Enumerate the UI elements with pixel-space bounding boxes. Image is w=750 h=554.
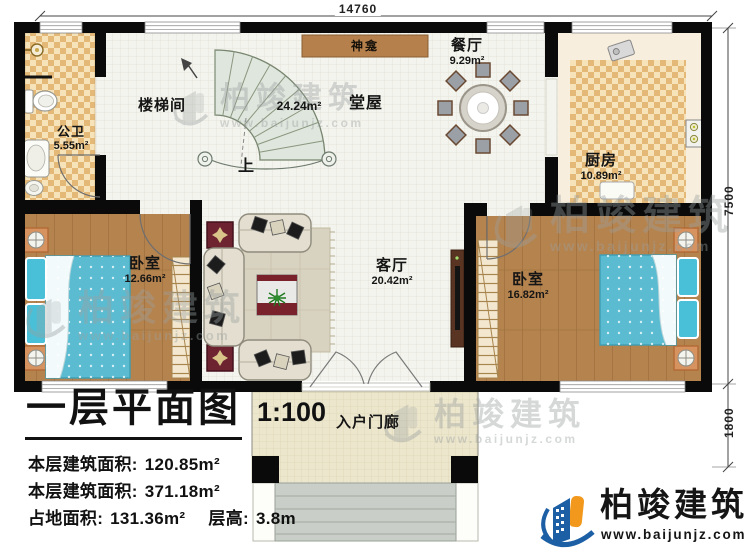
room-label-bathroom: 公卫 5.55m²	[54, 125, 89, 152]
room-area: 16.82m²	[508, 289, 549, 301]
stat-label: 本层建筑面积:	[28, 455, 138, 474]
room-label-dining: 餐厅 9.29m²	[450, 38, 485, 67]
room-label-hall: 堂屋	[349, 95, 383, 113]
tv-cabinet-icon	[451, 250, 464, 347]
title-block: 一层平面图 1:100	[26, 388, 326, 428]
floor-plan-page: 柏竣建筑 www.baijunjz.com 柏竣建筑 www.baijunjz.…	[0, 0, 750, 554]
room-name: 卧室	[125, 256, 166, 273]
room-name: 公卫	[54, 125, 89, 140]
room-name: 卧室	[508, 272, 549, 289]
room-area: 9.29m²	[450, 55, 485, 67]
stat-row-3: 占地面积:131.36m² 层高:3.8m	[28, 504, 296, 529]
dimension-right-upper: 7500	[722, 185, 736, 216]
stat-label: 占地面积:	[28, 509, 103, 528]
room-label-stairwell: 楼梯间	[138, 98, 186, 115]
room-name: 客厅	[372, 258, 413, 275]
brand-logo-icon	[534, 489, 598, 549]
room-label-bedroom-right: 卧室 16.82m²	[508, 272, 549, 301]
room-area: 10.89m²	[581, 170, 622, 182]
room-area: 12.66m²	[125, 273, 166, 285]
room-label-shrine: 神龛	[351, 40, 379, 53]
room-label-kitchen: 厨房 10.89m²	[581, 153, 622, 182]
room-area: 24.24m²	[277, 100, 322, 113]
room-name: 厨房	[581, 153, 622, 170]
brand-website: www.baijunjz.com	[601, 527, 746, 542]
room-name: 神龛	[351, 40, 379, 53]
dining-table-icon	[438, 63, 528, 153]
dimension-right-lower: 1800	[722, 407, 736, 438]
room-area: 5.55m²	[54, 140, 89, 152]
room-area: 20.42m²	[372, 275, 413, 287]
hall-area-label: 24.24m²	[277, 100, 322, 113]
dimension-top: 14760	[335, 2, 381, 16]
room-label-porch: 入户门廊	[336, 415, 400, 432]
room-name: 入户门廊	[336, 415, 400, 432]
stat-label: 层高:	[208, 509, 249, 528]
stat-row-1: 本层建筑面积:120.85m²	[28, 450, 220, 475]
room-name: 餐厅	[450, 38, 485, 55]
title-underline	[25, 437, 242, 440]
room-label-living: 客厅 20.42m²	[372, 258, 413, 287]
stat-label: 本层建筑面积:	[28, 482, 138, 501]
room-label-bedroom-left: 卧室 12.66m²	[125, 256, 166, 285]
stat-value: 3.8m	[256, 509, 296, 528]
scale-label: 1:100	[257, 398, 326, 428]
room-name: 堂屋	[349, 95, 383, 113]
page-title: 一层平面图	[26, 388, 241, 428]
stat-value: 131.36m²	[110, 509, 185, 528]
room-name: 楼梯间	[138, 98, 186, 115]
brand-name: 柏竣建筑	[600, 487, 748, 523]
stair-up-text: 上	[238, 158, 254, 176]
stat-value: 120.85m²	[145, 455, 220, 474]
stair-up-label: 上	[238, 158, 254, 176]
stat-value: 371.18m²	[145, 482, 220, 501]
stat-row-2: 本层建筑面积:371.18m²	[28, 477, 220, 502]
